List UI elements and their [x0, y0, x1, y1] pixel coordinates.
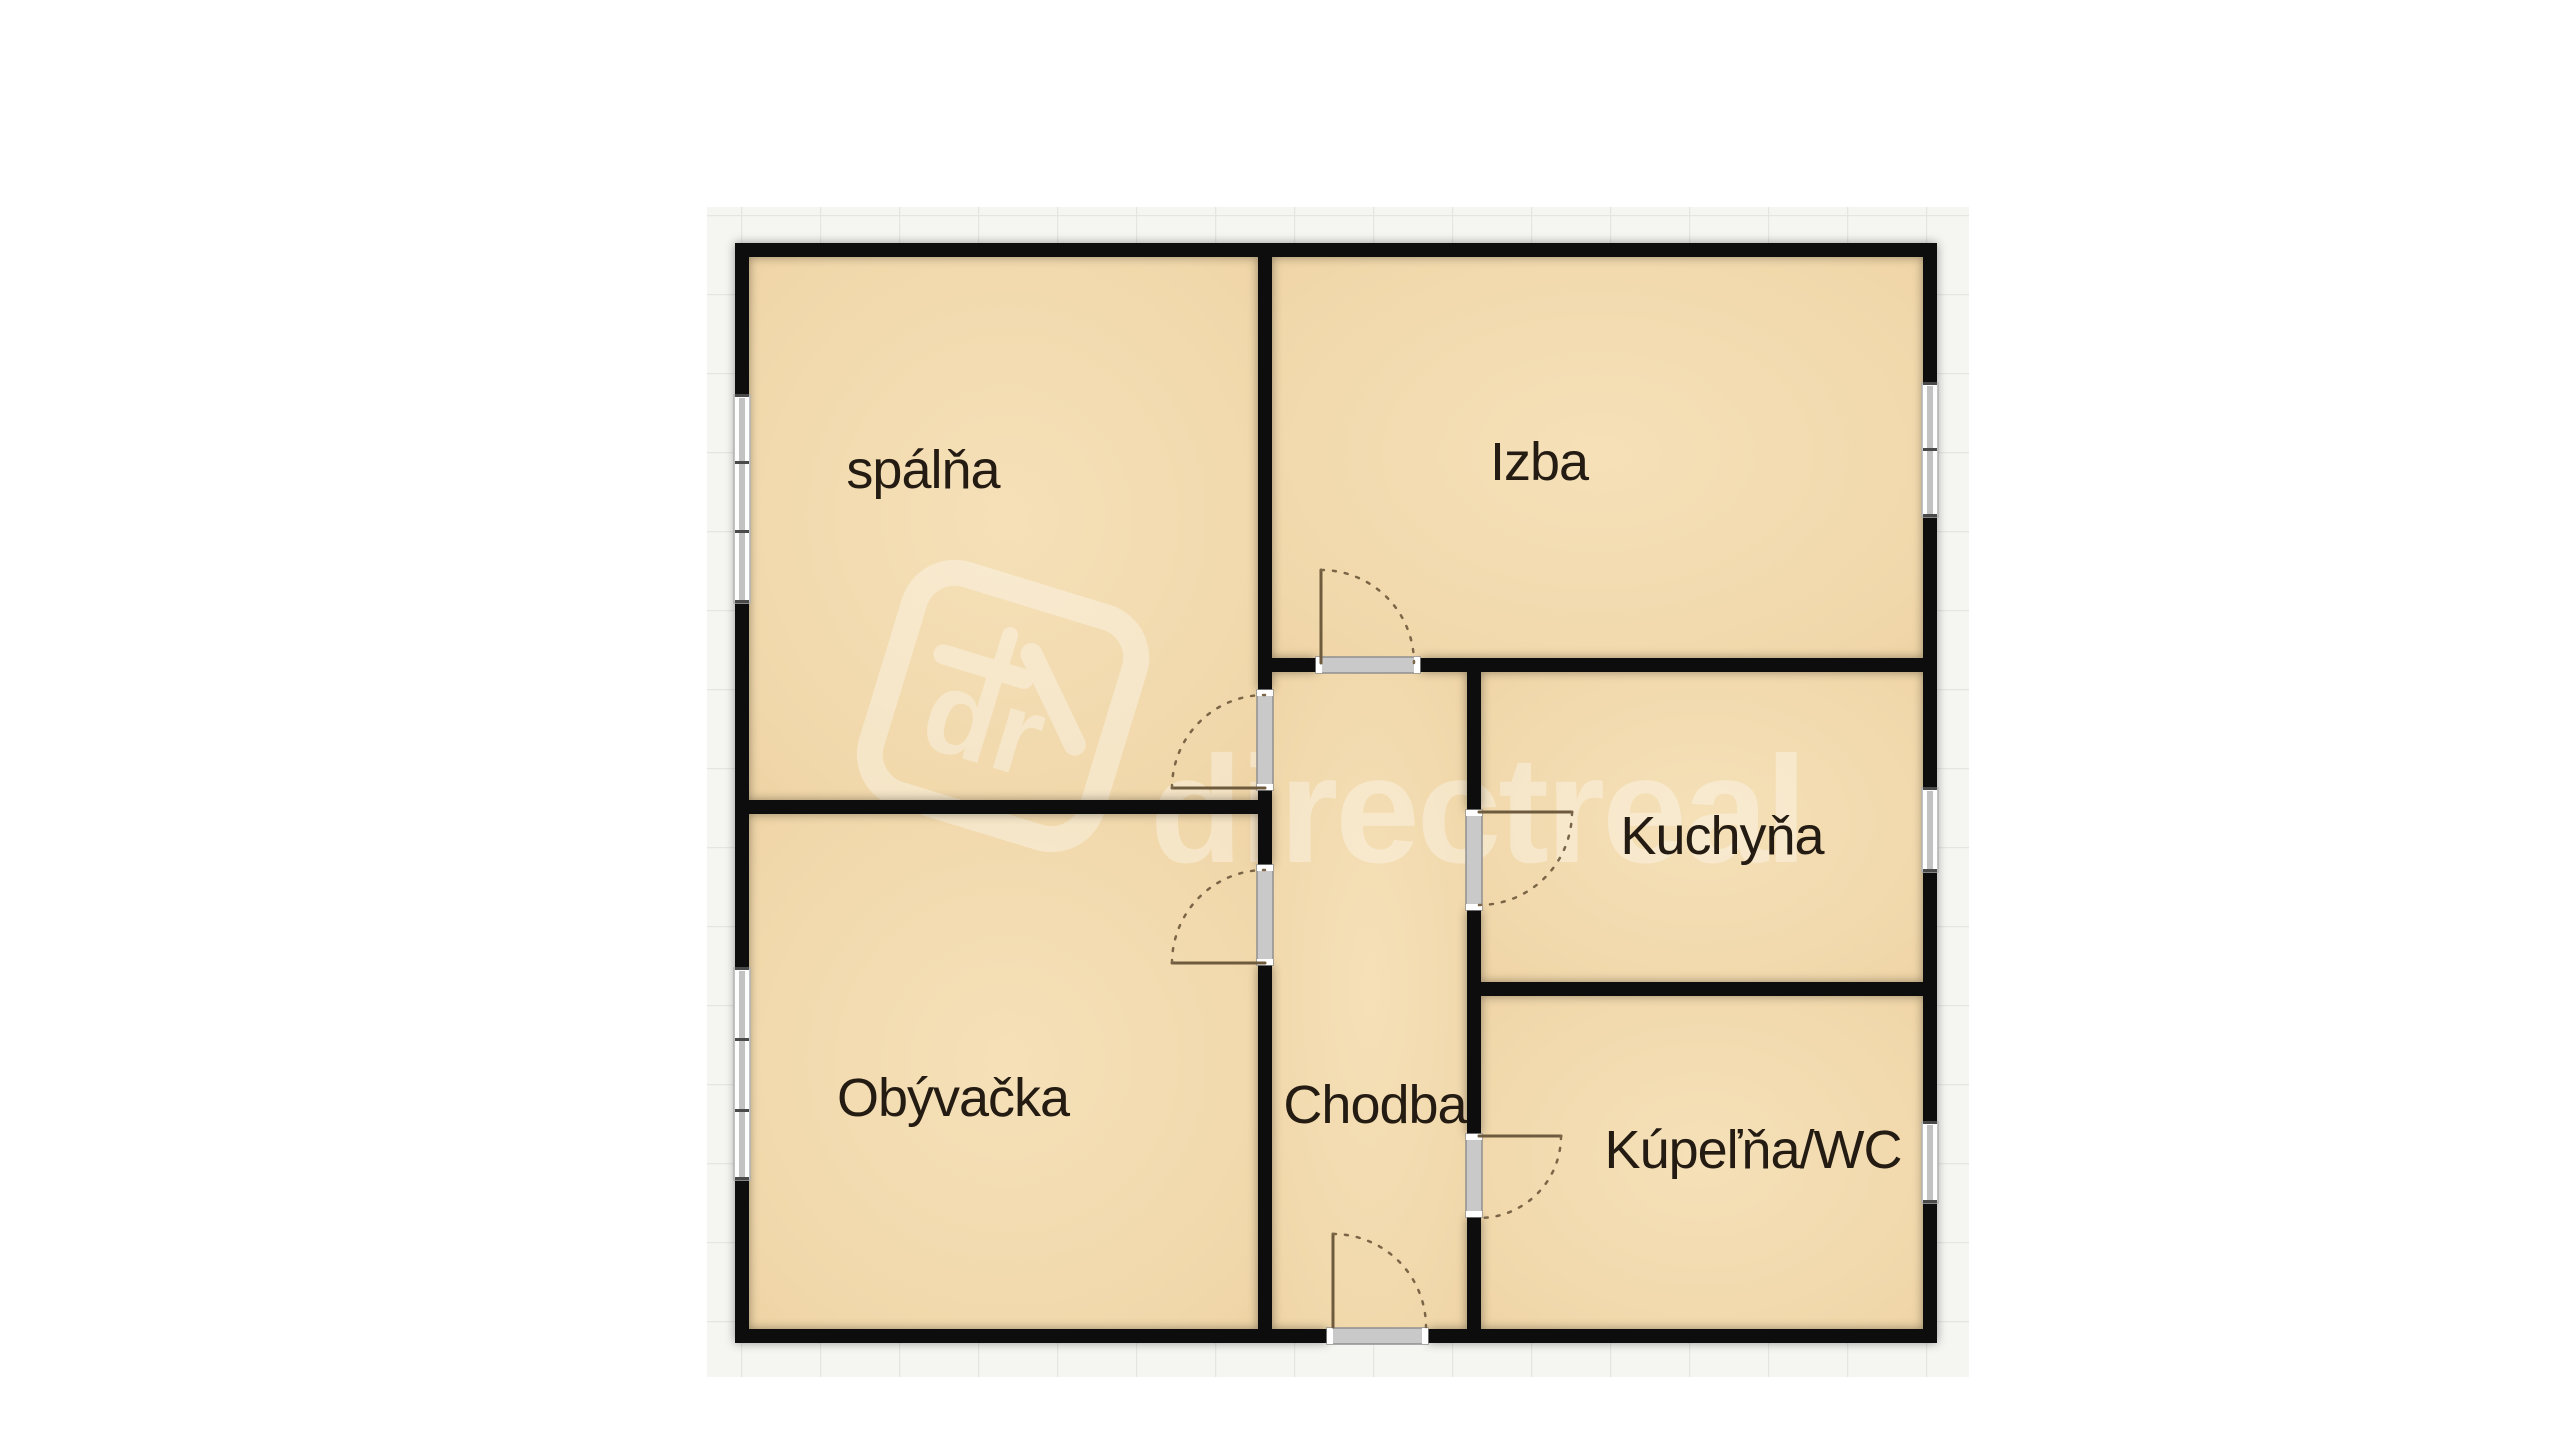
room-label-kupelna: Kúpeľňa/WC — [1605, 1119, 1902, 1181]
door-sill-spalna — [1257, 690, 1273, 790]
floorplan-canvas: dr directreal — [0, 0, 2560, 1440]
window-kuchyna — [1922, 787, 1938, 872]
wall-chodba-right-lower — [1467, 1217, 1481, 1343]
wall-outer-bottom-east — [1428, 1329, 1937, 1343]
wall-kuchyna-kupelna — [1467, 982, 1937, 996]
room-label-chodba: Chodba — [1283, 1074, 1466, 1136]
door-sill-kuchyna — [1466, 810, 1482, 910]
room-label-spalna: spálňa — [846, 439, 999, 501]
door-sill-izba — [1316, 657, 1420, 673]
window-izba — [1922, 382, 1938, 517]
wall-chodba-left-lower — [1258, 965, 1272, 1343]
window-kupelna — [1922, 1121, 1938, 1203]
room-label-izba: Izba — [1490, 431, 1588, 493]
door-sill-entrance — [1327, 1328, 1428, 1344]
room-izba-floor — [1265, 250, 1930, 672]
wall-outer-top — [735, 243, 1937, 257]
wall-chodba-right-mid — [1467, 910, 1481, 1134]
wall-spalna-obyvacka — [735, 800, 1272, 814]
floorplan-page: dr directreal — [0, 0, 2560, 1440]
room-label-kuchyna: Kuchyňa — [1620, 805, 1823, 867]
wall-spalna-izba-upper — [1258, 243, 1272, 690]
room-label-obyvacka: Obývačka — [837, 1067, 1069, 1129]
wall-outer-bottom-west — [735, 1329, 1327, 1343]
door-sill-obyvacka — [1257, 865, 1273, 965]
wall-izba-bottom-west — [1258, 658, 1316, 672]
window-obyvacka — [734, 967, 750, 1180]
wall-izba-bottom-east — [1420, 658, 1937, 672]
wall-chodba-right-upper — [1467, 658, 1481, 810]
window-spalna — [734, 394, 750, 603]
door-sill-kupelna — [1466, 1134, 1482, 1217]
